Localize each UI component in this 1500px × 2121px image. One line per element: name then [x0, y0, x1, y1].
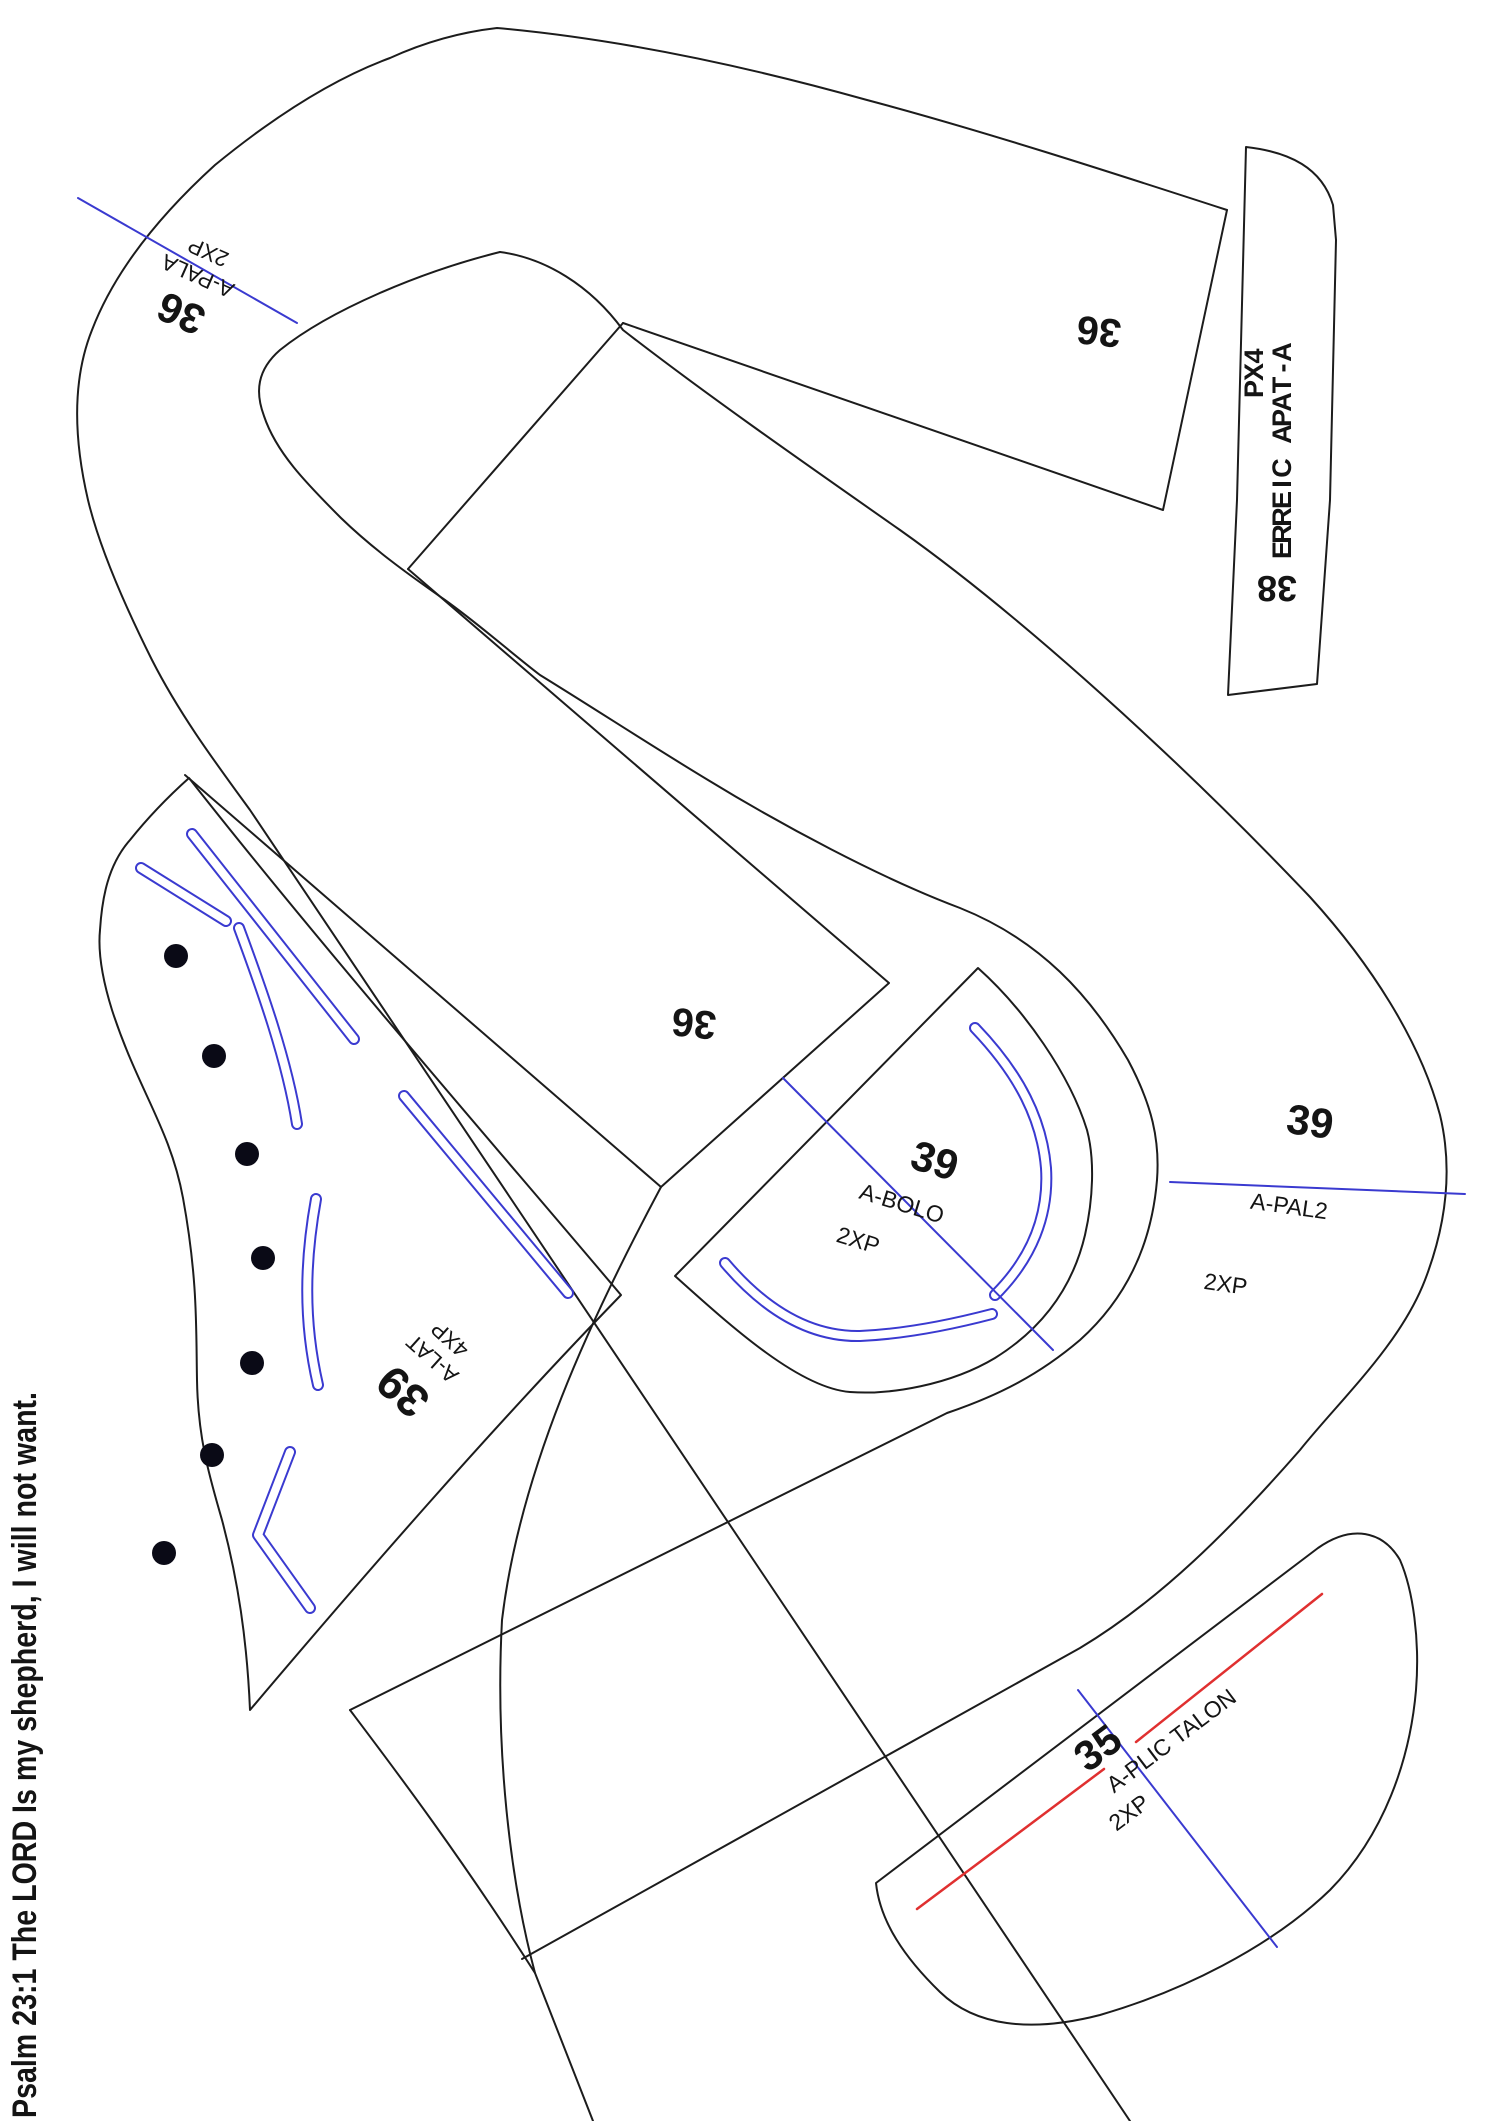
- svg-text:T: T: [1267, 376, 1297, 393]
- svg-text:36: 36: [669, 999, 718, 1047]
- svg-text:2XP: 2XP: [1202, 1268, 1249, 1300]
- svg-text:A-BOLO: A-BOLO: [857, 1178, 948, 1228]
- svg-text:P: P: [1239, 380, 1269, 398]
- svg-text:A: A: [1267, 342, 1297, 362]
- svg-text:I: I: [1267, 480, 1297, 488]
- svg-text:39: 39: [906, 1131, 964, 1190]
- svg-text:E: E: [1267, 541, 1297, 559]
- svg-text:38: 38: [1257, 568, 1297, 609]
- svg-text:36: 36: [1074, 307, 1123, 355]
- svg-text:E: E: [1267, 491, 1297, 509]
- svg-text:39: 39: [1284, 1095, 1337, 1148]
- svg-text:A: A: [1267, 424, 1297, 444]
- svg-text:A-PAL2: A-PAL2: [1249, 1188, 1329, 1225]
- svg-text:A: A: [1267, 392, 1297, 412]
- svg-text:R: R: [1267, 524, 1297, 544]
- svg-text:C: C: [1267, 458, 1297, 478]
- svg-text:Psalm 23:1 The LORD Is my shep: Psalm 23:1 The LORD Is my shepherd, I wi…: [6, 1392, 44, 2118]
- svg-text:-: -: [1267, 364, 1297, 373]
- svg-text:R: R: [1267, 507, 1297, 527]
- svg-text:4: 4: [1239, 348, 1269, 363]
- svg-text:2XP: 2XP: [834, 1221, 883, 1259]
- svg-text:A-PLIC TALON: A-PLIC TALON: [1101, 1683, 1241, 1797]
- svg-text:X: X: [1239, 363, 1269, 381]
- svg-text:2XP: 2XP: [1104, 1789, 1154, 1836]
